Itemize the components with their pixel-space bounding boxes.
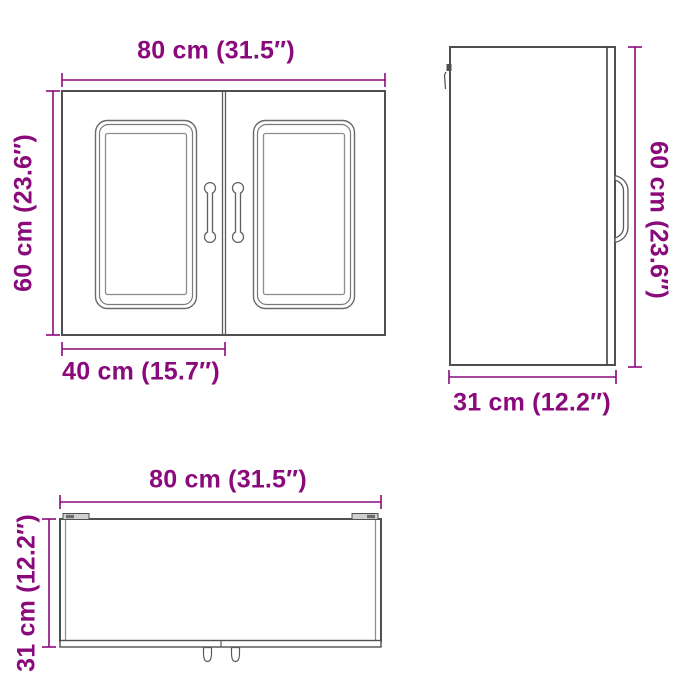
side-height-label: 60 cm (23.6″)	[646, 141, 671, 299]
front-view-drawing	[46, 73, 385, 356]
top-left-handle-knob	[204, 648, 212, 662]
top-left-hinge	[63, 514, 89, 520]
cabinet-dimension-diagram: 80 cm (31.5″) 60 cm (23.6″) 40 cm (15.7″…	[0, 0, 700, 700]
front-width-label: 80 cm (31.5″)	[137, 39, 295, 64]
side-view-drawing	[445, 47, 643, 384]
front-door-width-label: 40 cm (15.7″)	[62, 360, 220, 385]
top-cabinet-body	[60, 519, 381, 641]
side-depth-label: 31 cm (12.2″)	[453, 391, 611, 416]
top-view-drawing	[42, 495, 381, 662]
top-width-dimension-line	[60, 495, 381, 509]
side-depth-dimension-line	[449, 370, 616, 384]
front-height-dimension-line	[46, 91, 60, 335]
side-door-handle	[615, 176, 628, 243]
side-height-dimension-line	[628, 47, 642, 367]
top-right-handle-knob	[232, 648, 240, 662]
front-width-dimension-line	[62, 73, 385, 87]
diagram-line-art	[0, 0, 700, 700]
top-right-hinge	[352, 514, 378, 520]
top-depth-label: 31 cm (12.2″)	[15, 514, 40, 672]
front-cabinet-body	[62, 91, 385, 335]
front-door-width-dimension-line	[62, 342, 225, 356]
top-width-label: 80 cm (31.5″)	[149, 468, 307, 493]
front-height-label: 60 cm (23.6″)	[12, 134, 37, 292]
side-cabinet-body	[450, 47, 615, 365]
top-depth-dimension-line	[42, 519, 56, 647]
